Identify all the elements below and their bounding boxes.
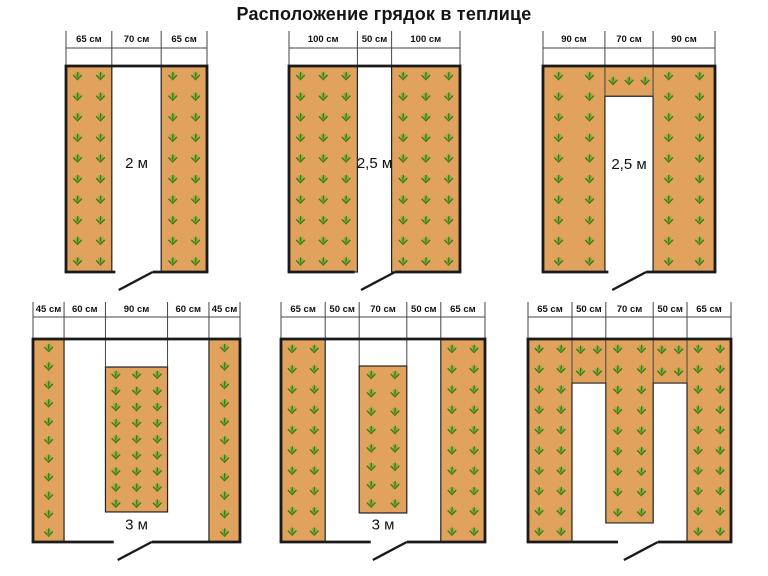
- dimension-label: 65 см: [696, 304, 722, 315]
- dimension-label: 90 см: [671, 34, 697, 45]
- greenhouse-3m-three-beds-wide-sides: 65 см50 см70 см50 см65 см3 м: [256, 295, 512, 576]
- dimension-label: 65 см: [76, 34, 102, 45]
- greenhouse-3m-comb-shaped-bed-drawing: 65 см50 см70 см50 см65 см: [512, 295, 768, 576]
- greenhouse-2-5m-u-shaped-bed: 90 см70 см90 см2,5 м: [512, 25, 768, 295]
- dimension-label: 45 см: [212, 304, 238, 315]
- dimension-label: 65 см: [537, 304, 563, 315]
- dimension-label: 70 см: [370, 304, 396, 315]
- dimension-label: 50 см: [329, 304, 355, 315]
- aisle-width-label: 2,5 м: [611, 156, 646, 173]
- dimension-label: 65 см: [171, 34, 197, 45]
- dimension-label: 65 см: [450, 304, 476, 315]
- dimension-label: 65 см: [290, 304, 316, 315]
- dimension-label: 60 см: [175, 304, 201, 315]
- dimension-label: 90 см: [124, 304, 150, 315]
- garden-bed: [441, 339, 485, 542]
- dimension-label: 100 см: [308, 34, 339, 45]
- aisle-width-label: 3 м: [372, 517, 395, 534]
- dimension-label: 70 см: [616, 34, 642, 45]
- aisle-width-label: 2,5 м: [357, 155, 392, 172]
- dimension-label: 70 см: [617, 304, 643, 315]
- greenhouse-2m-two-side-beds-drawing: 65 см70 см65 см2 м: [0, 25, 256, 295]
- plants: [45, 344, 229, 536]
- garden-bed: [281, 339, 325, 542]
- greenhouse-2-5m-u-shaped-bed-drawing: 90 см70 см90 см2,5 м: [512, 25, 768, 295]
- dimension-label: 90 см: [561, 34, 587, 45]
- garden-bed: [66, 66, 112, 272]
- dimension-label: 70 см: [124, 34, 150, 45]
- greenhouse-3m-three-beds-narrow-sides-drawing: 45 см60 см90 см60 см45 см3 м: [0, 295, 256, 576]
- dimension-label: 60 см: [72, 304, 98, 315]
- garden-bed: [161, 66, 207, 272]
- dimension-label: 50 см: [657, 304, 683, 315]
- garden-bed: [359, 366, 407, 513]
- greenhouse-3m-comb-shaped-bed: 65 см50 см70 см50 см65 см: [512, 295, 768, 576]
- dimension-lines: 65 см70 см65 см: [66, 31, 207, 66]
- door-leaf: [624, 542, 658, 560]
- door-leaf: [361, 272, 395, 290]
- dimension-label: 50 см: [576, 304, 602, 315]
- greenhouse-2m-two-side-beds: 65 см70 см65 см2 м: [0, 25, 256, 295]
- dimension-label: 45 см: [36, 304, 62, 315]
- door-leaf: [373, 542, 407, 560]
- door-leaf: [118, 542, 152, 560]
- door-leaf: [119, 272, 153, 290]
- greenhouse-3m-three-beds-narrow-sides: 45 см60 см90 см60 см45 см3 м: [0, 295, 256, 576]
- greenhouse-2-5m-two-side-beds-drawing: 100 см50 см100 см2,5 м: [256, 25, 512, 295]
- aisle-width-label: 2 м: [125, 155, 148, 172]
- greenhouse-3m-three-beds-wide-sides-drawing: 65 см50 см70 см50 см65 см3 м: [256, 295, 512, 576]
- aisle-width-label: 3 м: [125, 517, 148, 534]
- diagrams-grid: 65 см70 см65 см2 м100 см50 см100 см2,5 м…: [0, 0, 768, 576]
- dimension-lines: 100 см50 см100 см: [289, 31, 460, 66]
- dimension-label: 100 см: [410, 34, 441, 45]
- dimension-label: 50 см: [362, 34, 388, 45]
- door-leaf: [612, 272, 646, 290]
- dimension-label: 50 см: [411, 304, 437, 315]
- greenhouse-2-5m-two-side-beds: 100 см50 см100 см2,5 м: [256, 25, 512, 295]
